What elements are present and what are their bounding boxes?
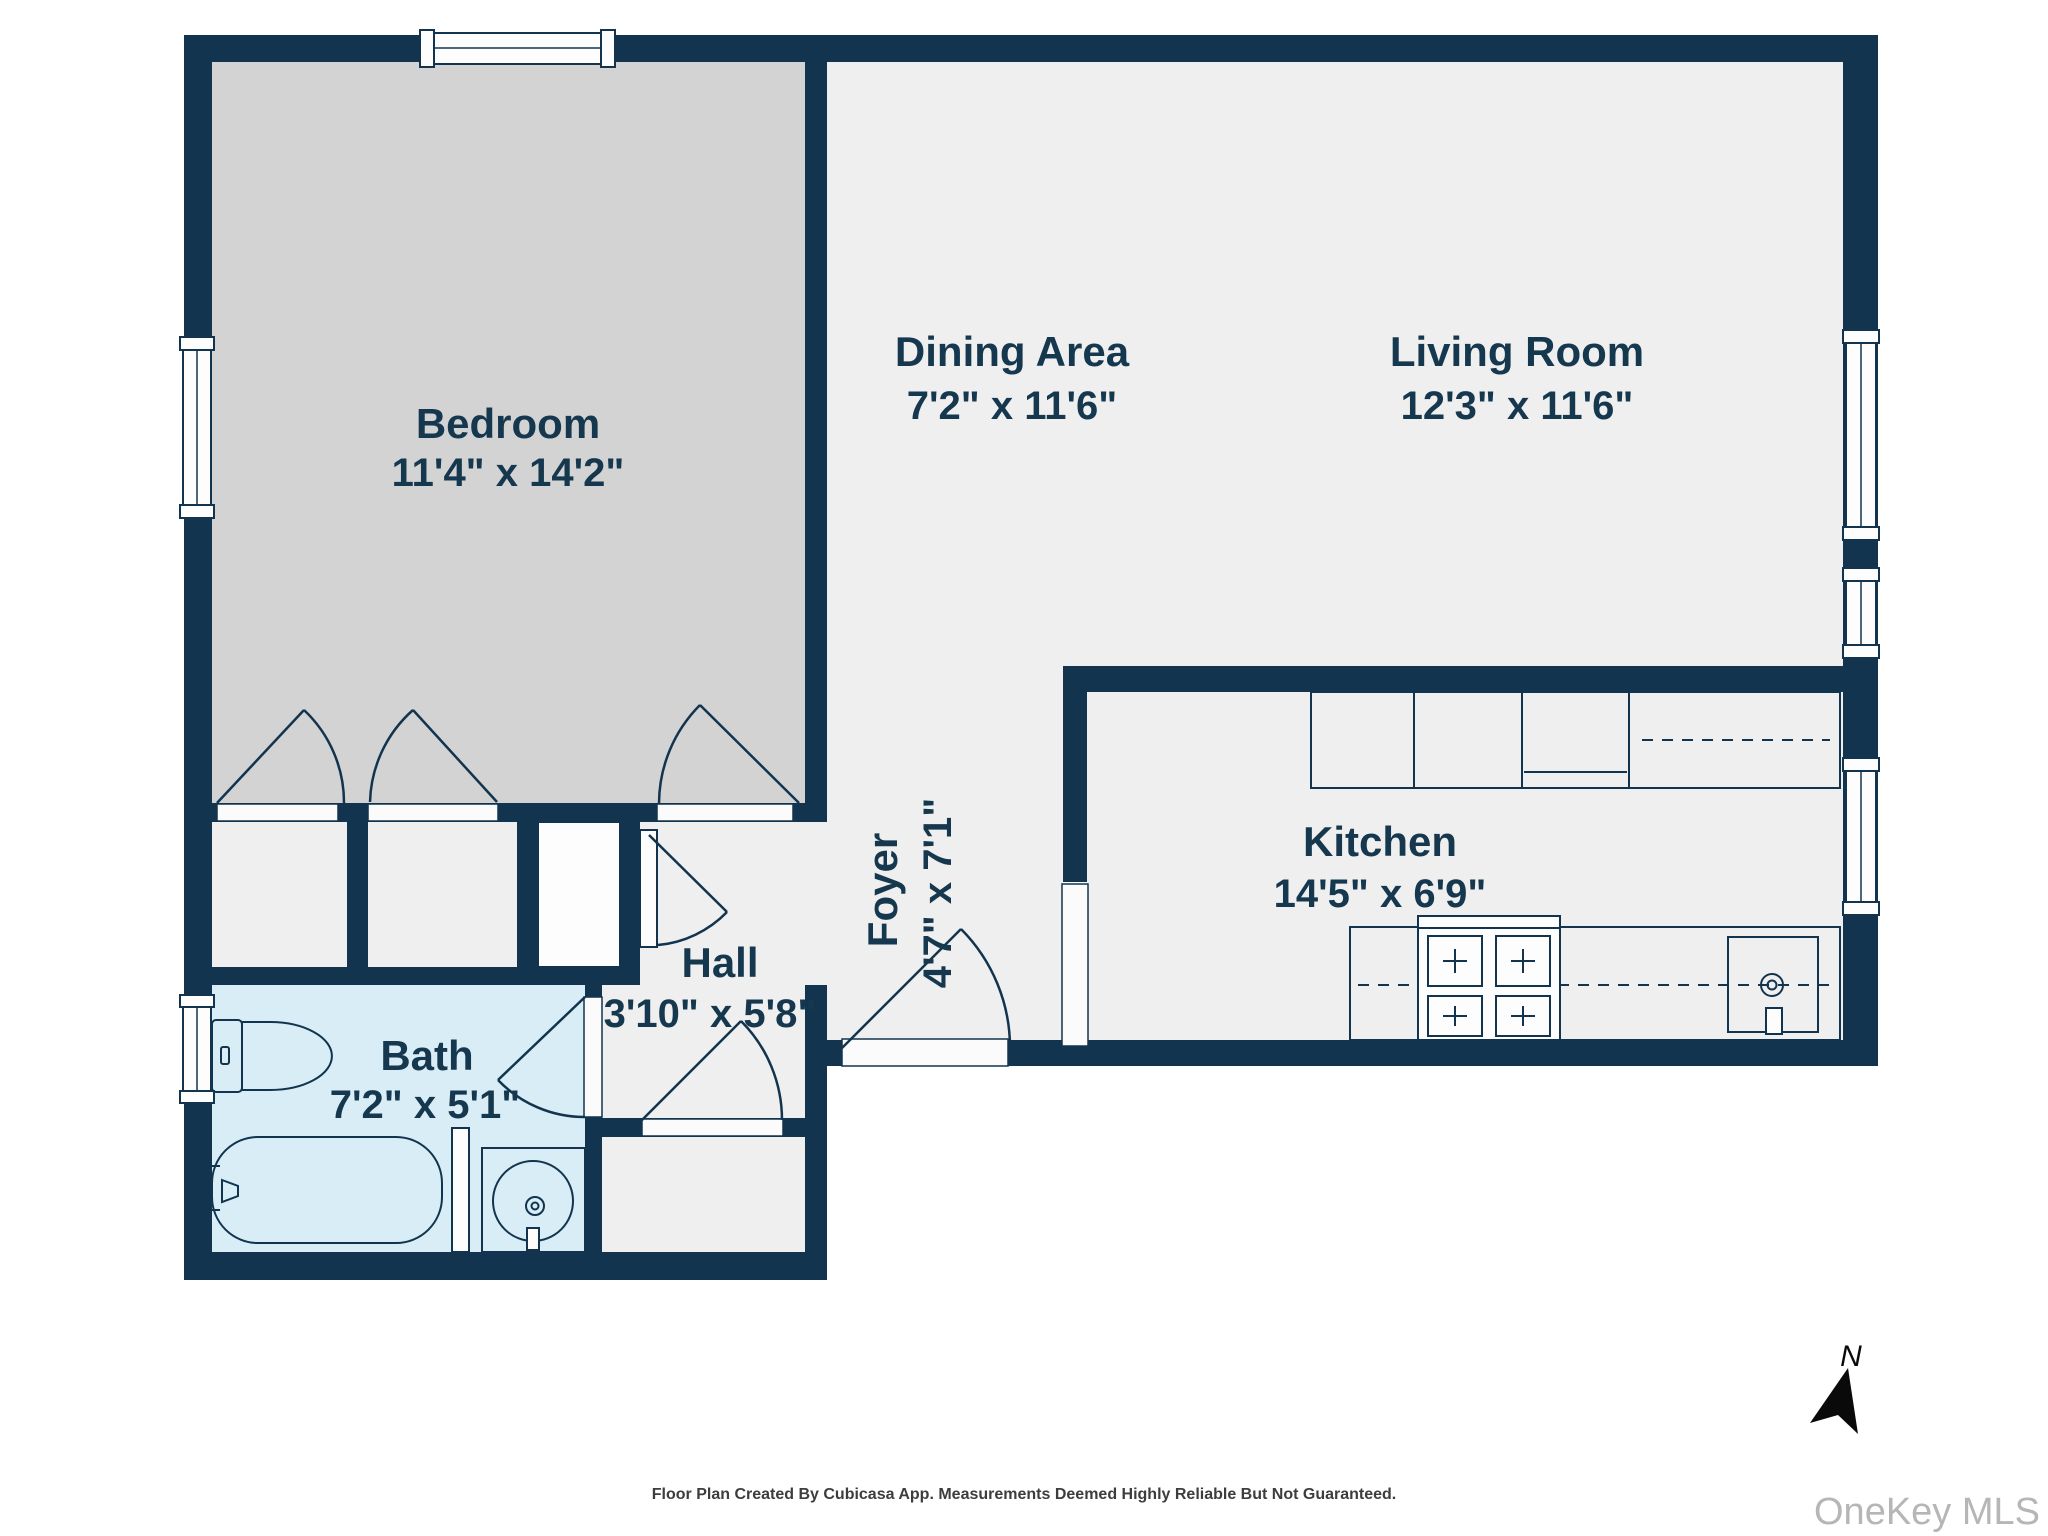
bedroom-door-threshold	[657, 804, 793, 821]
wall-closet-divider	[517, 822, 538, 967]
entry-door-threshold	[842, 1039, 1008, 1066]
wall-closet-divider	[347, 822, 368, 967]
wall-bedroom-right	[805, 35, 827, 803]
wall-closet-divider	[620, 822, 640, 967]
wall-bottom-left	[184, 1252, 827, 1280]
bath-left-window	[180, 995, 214, 1103]
wall-kitchen-left-stub	[1063, 1046, 1087, 1066]
north-label: N	[1840, 1340, 1862, 1373]
stove	[1418, 916, 1560, 1040]
hall-door-threshold	[642, 1119, 783, 1136]
dining-label: Dining Area	[895, 328, 1130, 375]
sink-drain	[527, 1228, 539, 1250]
watermark: OneKey MLS	[1814, 1491, 2040, 1533]
bedroom-label: Bedroom	[416, 400, 600, 447]
sink-drain	[1766, 1008, 1782, 1034]
wall-bath-right	[585, 985, 602, 997]
hall-label: Hall	[681, 939, 758, 986]
storage-room-floor	[602, 1137, 805, 1252]
north-compass: N	[1810, 1340, 1862, 1434]
kitchen-label: Kitchen	[1303, 818, 1457, 865]
bedroom-dims: 11'4" x 14'2"	[392, 451, 625, 495]
hall-dims: 3'10" x 5'8"	[604, 992, 817, 1036]
closet-a-floor	[212, 822, 347, 967]
floor-plan-page: Bedroom 11'4" x 14'2" Dining Area 7'2" x…	[0, 0, 2048, 1536]
closet-b-threshold	[368, 804, 498, 821]
kitchen-dims: 14'5" x 6'9"	[1274, 872, 1487, 916]
north-arrow-icon	[1810, 1368, 1858, 1434]
closet-a-threshold	[217, 804, 338, 821]
foyer-dims: 4'7" x 7'1"	[916, 798, 960, 988]
living-label: Living Room	[1390, 328, 1644, 375]
kitchen-right-window	[1843, 758, 1879, 915]
bedroom-left-window	[180, 337, 214, 518]
dining-dims: 7'2" x 11'6"	[907, 384, 1117, 428]
bath-label: Bath	[380, 1032, 473, 1079]
footer-disclaimer: Floor Plan Created By Cubicasa App. Meas…	[652, 1486, 1396, 1503]
bedroom-top-window	[420, 30, 615, 67]
stove-body	[1418, 916, 1560, 1040]
bath-divider	[452, 1128, 469, 1252]
wall-bath-top	[184, 967, 640, 985]
closet-c-box	[538, 822, 620, 967]
living-right-window-1	[1843, 330, 1879, 540]
wall-bath-right	[585, 1117, 602, 1252]
floor-plan-drawing: Bedroom 11'4" x 14'2" Dining Area 7'2" x…	[0, 0, 2048, 1536]
wall-kitchen-top	[1063, 666, 1843, 692]
wall-kitchen-left	[1063, 666, 1087, 882]
living-right-window-2	[1843, 568, 1879, 658]
living-dims: 12'3" x 11'6"	[1401, 384, 1634, 428]
door-leaf	[640, 830, 657, 947]
closet-b-floor	[368, 822, 517, 967]
foyer-label: Foyer	[859, 833, 906, 947]
bath-door-threshold	[584, 997, 602, 1117]
kitchen-door-threshold	[1062, 884, 1088, 1046]
bath-dims: 7'2" x 5'1"	[330, 1083, 520, 1127]
